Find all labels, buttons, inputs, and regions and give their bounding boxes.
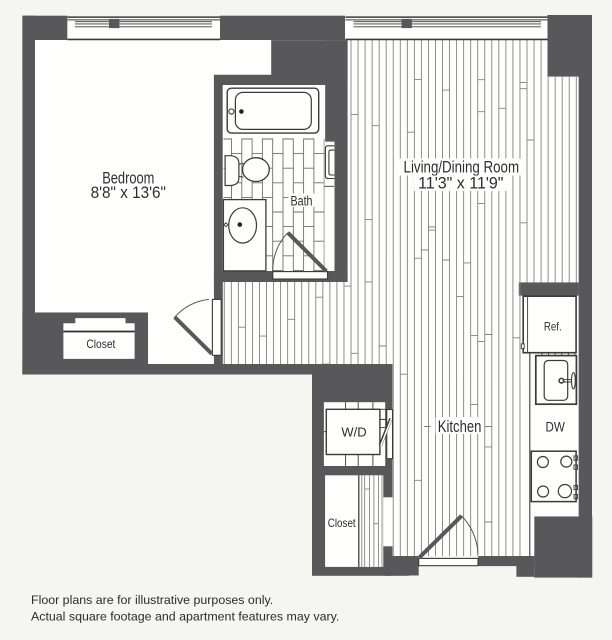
svg-text:Closet: Closet <box>86 337 116 351</box>
svg-text:Floor plans are for illustrati: Floor plans are for illustrative purpose… <box>31 593 273 607</box>
svg-text:8'8" x 13'6": 8'8" x 13'6" <box>91 183 166 202</box>
svg-text:Bath: Bath <box>291 193 313 208</box>
svg-text:W/D: W/D <box>341 425 366 439</box>
svg-text:Kitchen: Kitchen <box>438 417 482 436</box>
svg-text:Ref.: Ref. <box>544 319 562 333</box>
svg-text:11'3" x 11'9": 11'3" x 11'9" <box>418 174 503 193</box>
svg-text:Closet: Closet <box>328 516 356 530</box>
svg-text:Actual square footage and apar: Actual square footage and apartment feat… <box>31 610 339 624</box>
svg-text:DW: DW <box>546 420 566 435</box>
